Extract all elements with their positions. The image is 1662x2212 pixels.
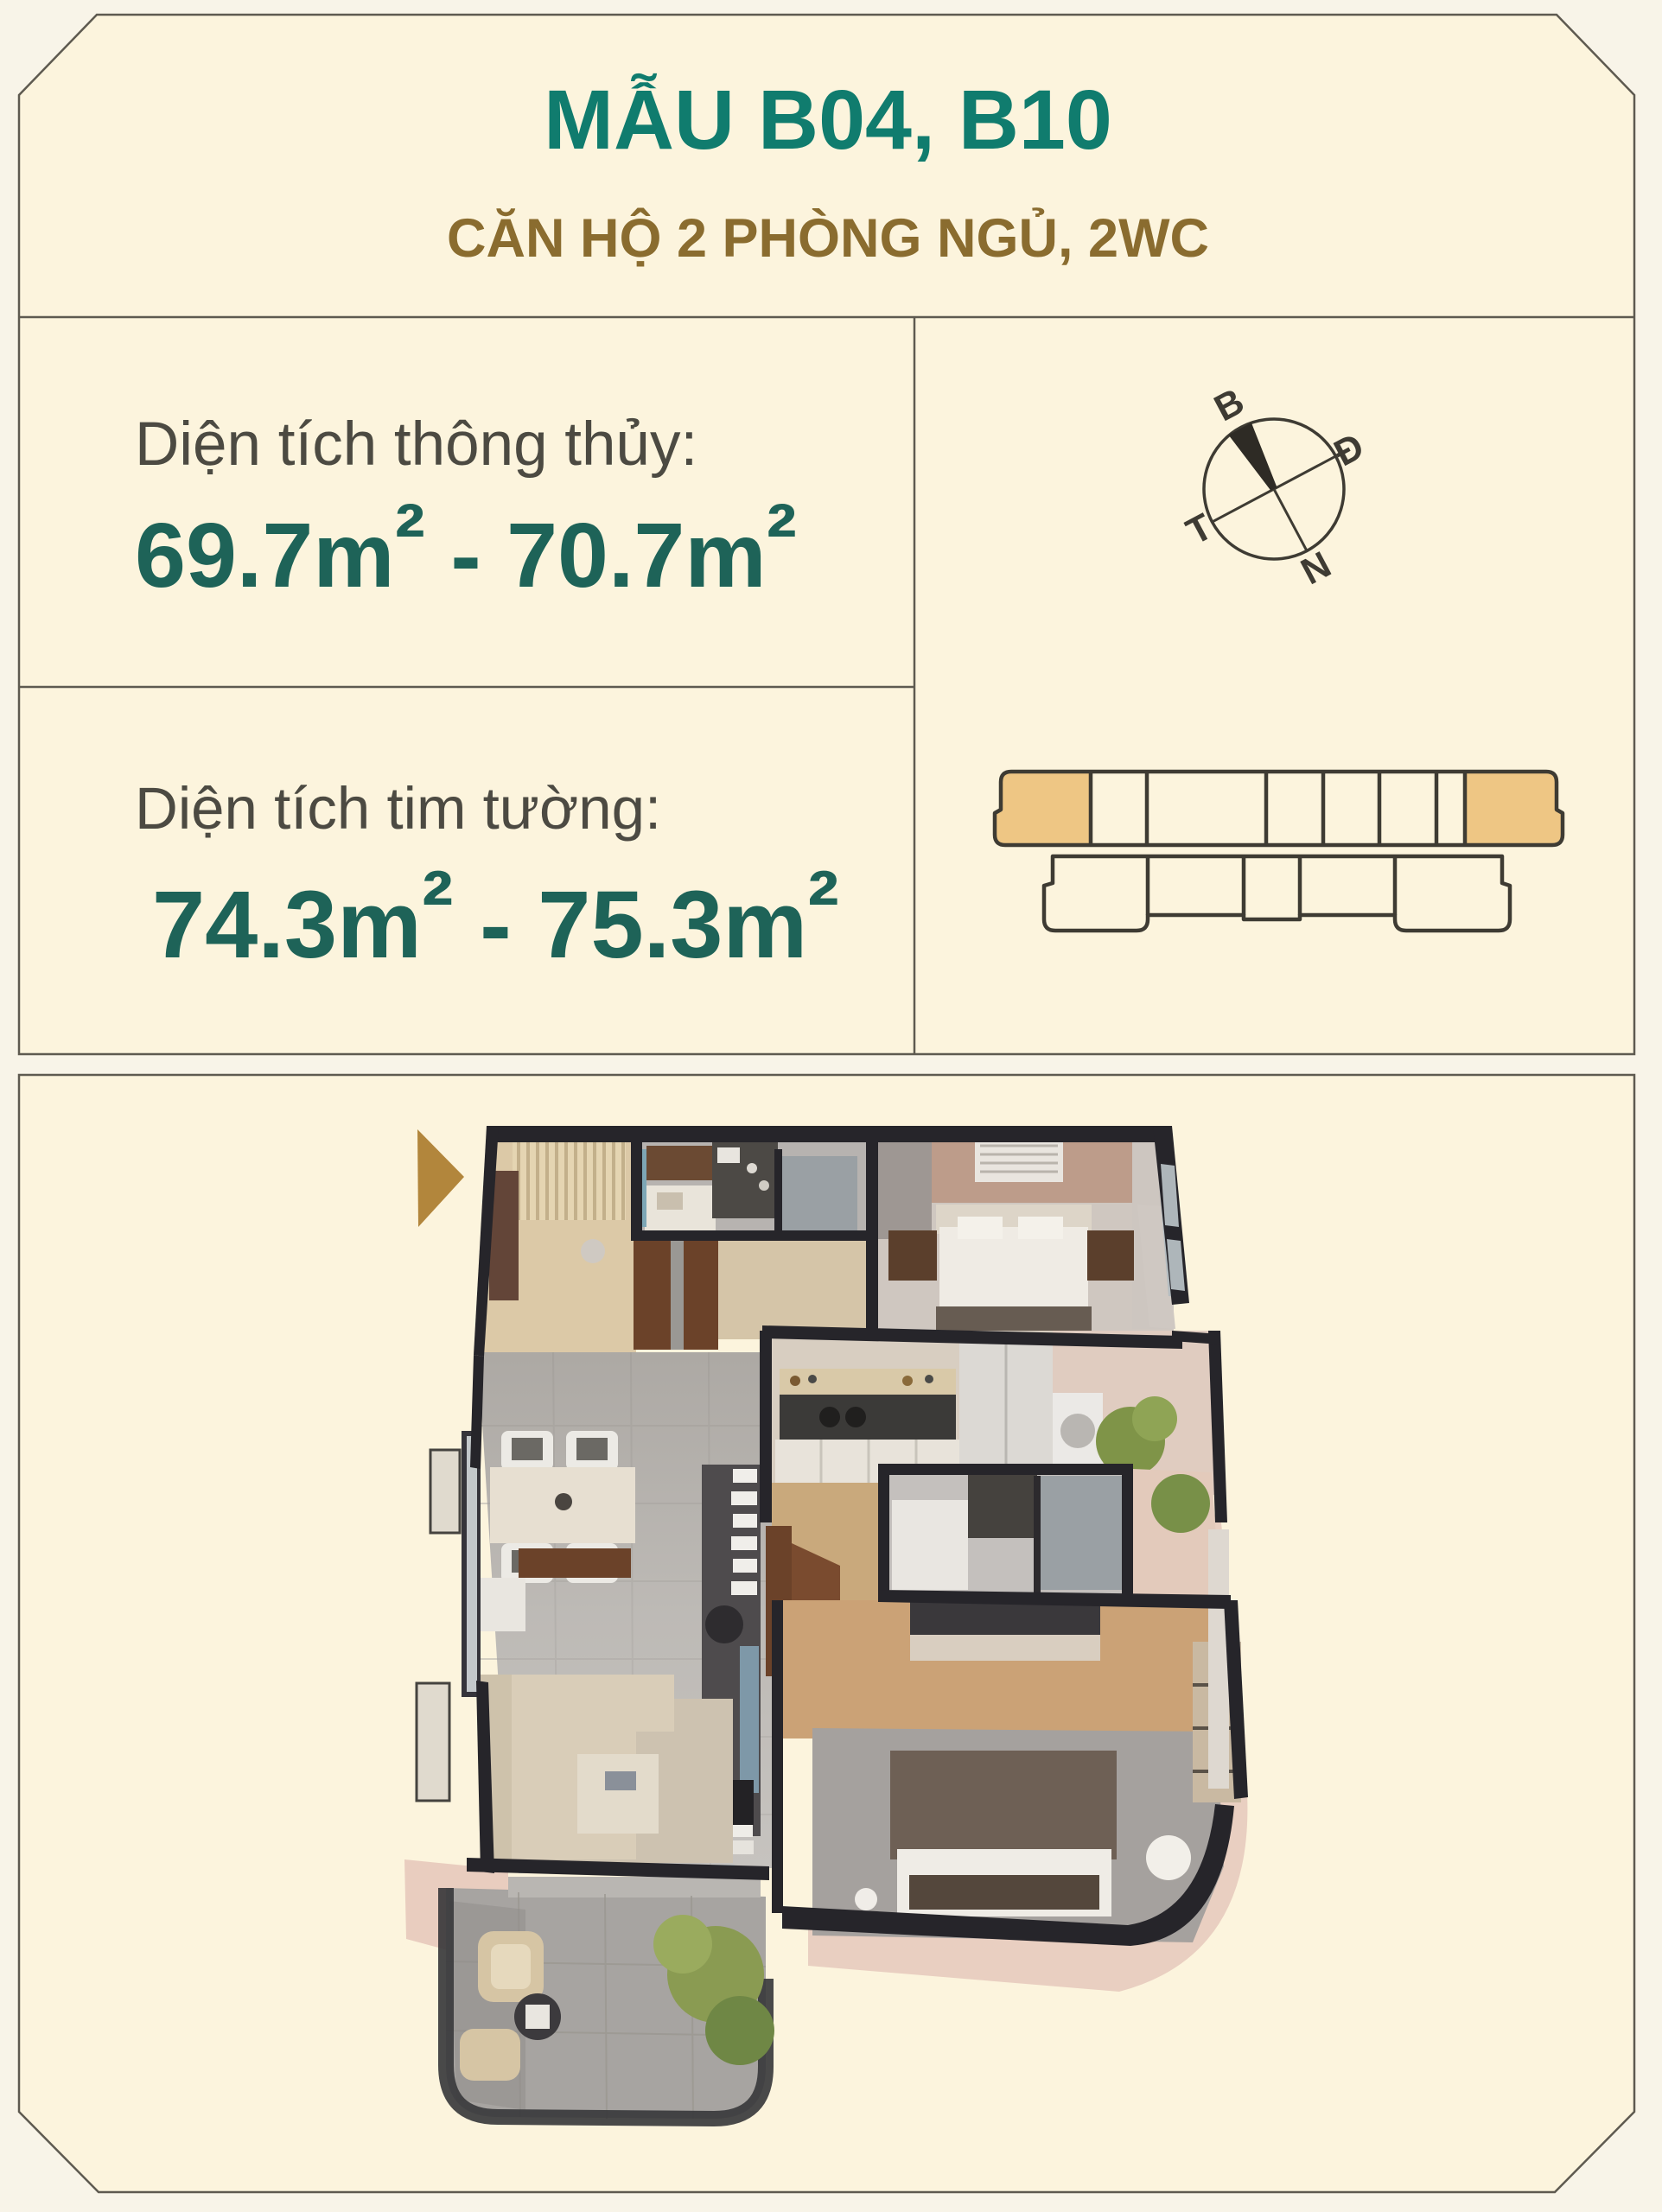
svg-text:CĂN HỘ 2 PHÒNG NGỦ, 2WC: CĂN HỘ 2 PHÒNG NGỦ, 2WC <box>447 207 1209 269</box>
svg-text:Diện tích tim tường:: Diện tích tim tường: <box>135 775 661 842</box>
svg-text:Diện tích thông thủy:: Diện tích thông thủy: <box>135 410 697 479</box>
svg-text:MẪU B04, B10: MẪU B04, B10 <box>544 73 1112 167</box>
